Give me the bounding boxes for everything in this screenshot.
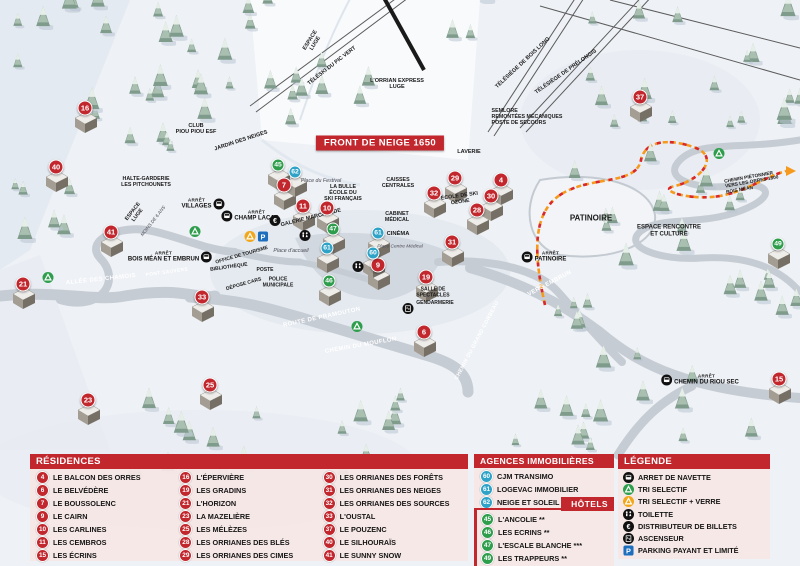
residence-item: 11LES CEMBROS bbox=[36, 536, 179, 549]
legende-item-label: ARRET DE NAVETTE bbox=[638, 473, 711, 482]
map-marker-9: 9 bbox=[371, 258, 386, 273]
recycle-yellow-icon bbox=[623, 496, 634, 507]
item-label: LES CARLINES bbox=[53, 525, 107, 534]
agency-item: 60CJM TRANSIMO bbox=[480, 470, 614, 483]
agency-item: 61LOGEVAC IMMOBILIER bbox=[480, 483, 614, 496]
item-number-badge: 47 bbox=[481, 539, 494, 552]
item-number-badge: 28 bbox=[179, 536, 192, 549]
bus-icon bbox=[522, 252, 533, 263]
euro-map-icon: € bbox=[270, 213, 281, 231]
residence-item: 16L'ÉPERVIÈRE bbox=[179, 471, 322, 484]
elevator-icon bbox=[623, 533, 634, 544]
recycle-green-icon bbox=[714, 148, 725, 159]
map-label: POLICE MUNICIPALE bbox=[263, 277, 294, 288]
map-marker-11: 11 bbox=[296, 199, 311, 214]
legende-item-label: TOILETTE bbox=[638, 510, 673, 519]
residence-item: 25LES MÉLÈZES bbox=[179, 523, 322, 536]
residence-item: 29LES ORRIANES DES CIMES bbox=[179, 549, 322, 562]
map-marker-62: 62 bbox=[289, 166, 302, 179]
euro-icon: € bbox=[270, 215, 281, 226]
item-label: LE BALCON DES ORRES bbox=[53, 473, 141, 482]
map-label: DÉPOSE CARS bbox=[226, 277, 263, 292]
map-marker-45: 45 bbox=[272, 159, 285, 172]
map-label: ESPACE LUGE bbox=[302, 29, 324, 54]
item-label: LES ORRIANES DES SOURCES bbox=[340, 499, 450, 508]
item-number-badge: 4 bbox=[36, 471, 49, 484]
bus-stop-label: ARRÊTBOIS MÉAN ET EMBRUN bbox=[128, 252, 199, 263]
map-label: LAVERIE bbox=[457, 149, 480, 155]
bus-icon bbox=[661, 375, 672, 386]
residence-item: 30LES ORRIANES DES FORÊTS bbox=[323, 471, 466, 484]
legende-item: TOILETTE bbox=[623, 508, 770, 520]
map-marker-23: 23 bbox=[81, 393, 96, 408]
map-label: TÉLÉSIÈGE DE PRÉLONGIS bbox=[534, 48, 598, 95]
item-number-badge: 30 bbox=[323, 471, 336, 484]
item-number-badge: 19 bbox=[179, 484, 192, 497]
wc-icon bbox=[623, 509, 634, 520]
residence-item: 19LES GRADINS bbox=[179, 484, 322, 497]
hotels-panel: HÔTELS 45L'ANCOLIE **46LES ECRINS **47L'… bbox=[474, 508, 614, 566]
map-label: Place Centre Médical bbox=[377, 244, 423, 249]
svg-text:€: € bbox=[273, 218, 277, 225]
residence-item: 10LES CARLINES bbox=[36, 523, 179, 536]
map-marker-25: 25 bbox=[203, 378, 218, 393]
front-de-neige-banner: FRONT DE NEIGE 1650 bbox=[316, 136, 444, 151]
legende-item: ARRET DE NAVETTE bbox=[623, 471, 770, 483]
item-label: LES ECRINS ** bbox=[498, 528, 550, 537]
bus-stop-villages: ARRÊTVILLAGES bbox=[181, 199, 224, 210]
item-label: L'OUSTAL bbox=[340, 512, 376, 521]
legende-item: ASCENSEUR bbox=[623, 532, 770, 544]
legende-panel-title: LÉGENDE bbox=[618, 454, 770, 469]
residences-list: 4LE BALCON DES ORRES6LE BELVÉDÈRE7LE BOU… bbox=[30, 469, 468, 561]
item-label: LE SILHOURAÏS bbox=[340, 538, 396, 547]
residence-item: 15LES ÉCRINS bbox=[36, 549, 179, 562]
item-label: LE BELVÉDÈRE bbox=[53, 486, 108, 495]
map-marker-49: 49 bbox=[772, 238, 785, 251]
legende-item-label: TRI SELECTIF + VERRE bbox=[638, 497, 721, 506]
item-label: LES ORRIANES DES FORÊTS bbox=[340, 473, 443, 482]
map-label: L'ORRIAN EXPRESS LUGE bbox=[370, 78, 424, 90]
map-label: HALTE-GARDERIE LES PITCHOUNETS bbox=[121, 177, 171, 189]
residence-item: 37LE POUZENC bbox=[323, 523, 466, 536]
item-number-badge: 45 bbox=[481, 513, 494, 526]
svg-text:P: P bbox=[626, 547, 631, 556]
map-marker-60: 60 bbox=[367, 247, 380, 260]
residence-item: 28LES ORRIANES DES BLÉS bbox=[179, 536, 322, 549]
item-label: LES CEMBROS bbox=[53, 538, 107, 547]
residence-item: 9LE CAIRN bbox=[36, 510, 179, 523]
residence-item: 41LE SUNNY SNOW bbox=[323, 549, 466, 562]
item-number-badge: 15 bbox=[36, 549, 49, 562]
item-label: LES MÉLÈZES bbox=[196, 525, 247, 534]
parking-icon: P bbox=[258, 231, 269, 242]
map-marker-46: 46 bbox=[323, 275, 336, 288]
legende-item-label: PARKING PAYANT ET LIMITÉ bbox=[638, 546, 739, 555]
map-label: CHEMIN DU GRAND CORBEAU bbox=[455, 301, 502, 382]
map-label: Place d'accueil bbox=[273, 249, 308, 255]
wc-icon bbox=[353, 261, 364, 272]
item-number-badge: 49 bbox=[481, 552, 494, 565]
item-number-badge: 29 bbox=[179, 549, 192, 562]
bus-stop-name: BOIS MÉAN ET EMBRUN bbox=[128, 256, 199, 262]
wc-map-icon bbox=[353, 259, 364, 277]
svg-text:€: € bbox=[627, 524, 631, 531]
map-label: ALLÉE DES CHAMOIS bbox=[66, 273, 137, 287]
item-number-badge: 41 bbox=[323, 549, 336, 562]
item-label: CJM TRANSIMO bbox=[497, 472, 553, 481]
map-marker-10: 10 bbox=[320, 201, 335, 216]
item-number-badge: 33 bbox=[323, 510, 336, 523]
map-label: CHEMIN PIÉTONNIER VERS LES ORRES 1800 BO… bbox=[724, 170, 780, 195]
bus-stop-label: ARRÊTVILLAGES bbox=[181, 199, 211, 210]
bus-icon bbox=[201, 252, 212, 263]
item-label: L'ÉPERVIÈRE bbox=[196, 473, 244, 482]
bus-stop-name: CHEMIN DU RIOU SEC bbox=[674, 379, 739, 385]
agencies-panel-title: AGENCES IMMOBILIÈRES bbox=[474, 454, 614, 468]
map-marker-31: 31 bbox=[445, 235, 460, 250]
legende-item-label: TRI SELECTIF bbox=[638, 485, 687, 494]
hotel-item: 45L'ANCOLIE ** bbox=[481, 513, 614, 526]
map-marker-15: 15 bbox=[772, 372, 787, 387]
recycle-green-map-icon bbox=[352, 319, 363, 337]
bus-stop-patinoire: ARRÊTPATINOIRE bbox=[522, 252, 567, 263]
recycle-green-icon bbox=[352, 321, 363, 332]
item-label: LE POUZENC bbox=[340, 525, 387, 534]
legende-panel: LÉGENDE ARRET DE NAVETTETRI SELECTIFTRI … bbox=[618, 454, 770, 559]
map-marker-61: 61 bbox=[372, 227, 385, 240]
recycle-green-map-icon bbox=[190, 224, 201, 242]
item-number-badge: 60 bbox=[480, 470, 493, 483]
hotels-list: 45L'ANCOLIE **46LES ECRINS **47L'ESCALE … bbox=[481, 513, 614, 565]
item-number-badge: 25 bbox=[179, 523, 192, 536]
item-number-badge: 6 bbox=[36, 484, 49, 497]
parking-map-icon: P bbox=[258, 229, 269, 247]
hotel-item: 46LES ECRINS ** bbox=[481, 526, 614, 539]
map-label: CINÉMA bbox=[387, 231, 410, 237]
item-label: LES GRADINS bbox=[196, 486, 246, 495]
map-label: CABINET MÉDICAL bbox=[385, 212, 409, 224]
recycle-yellow-map-icon bbox=[245, 229, 256, 247]
residence-item: 7LE BOUSSOLENC bbox=[36, 497, 179, 510]
map-marker-4: 4 bbox=[494, 173, 509, 188]
recycle-green-icon bbox=[43, 272, 54, 283]
bus-icon bbox=[221, 211, 232, 222]
map-marker-37: 37 bbox=[633, 90, 648, 105]
bus-stop-name: PATINOIRE bbox=[535, 256, 567, 262]
map-label: ESPACE LUGE bbox=[125, 202, 148, 226]
map-label: GENDARMERIE bbox=[416, 301, 454, 307]
map-label: ESPACE RENCONTRE ET CULTURE bbox=[637, 224, 701, 237]
legende-item: PPARKING PAYANT ET LIMITÉ bbox=[623, 545, 770, 557]
item-number-badge: 61 bbox=[480, 483, 493, 496]
map-label: JARDIN DES NEIGES bbox=[214, 129, 269, 152]
map-marker-32: 32 bbox=[427, 186, 442, 201]
item-label: LES ORRIANES DES CIMES bbox=[196, 551, 293, 560]
residence-item: 33L'OUSTAL bbox=[323, 510, 466, 523]
item-number-badge: 9 bbox=[36, 510, 49, 523]
hotel-item: 47L'ESCALE BLANCHE *** bbox=[481, 539, 614, 552]
item-label: LES ÉCRINS bbox=[53, 551, 97, 560]
item-label: L'ESCALE BLANCHE *** bbox=[498, 541, 582, 550]
bus-stop-bois-m-an-et-embrun: ARRÊTBOIS MÉAN ET EMBRUN bbox=[128, 252, 212, 263]
bus-stop-name: VILLAGES bbox=[181, 203, 211, 209]
map-marker-6: 6 bbox=[417, 325, 432, 340]
map-marker-21: 21 bbox=[16, 277, 31, 292]
resort-map: FRONT DE NEIGE 1650 ESPACE LUGEL'ORRIAN … bbox=[0, 0, 800, 566]
map-marker-30: 30 bbox=[484, 189, 499, 204]
recycle-green-map-icon bbox=[714, 146, 725, 164]
euro-icon: € bbox=[623, 521, 634, 532]
legende-item: TRI SELECTIF + VERRE bbox=[623, 496, 770, 508]
legende-item-label: ASCENSEUR bbox=[638, 534, 684, 543]
map-marker-41: 41 bbox=[104, 225, 119, 240]
map-label: CHEMIN DU MOUFLON bbox=[325, 336, 398, 355]
item-label: LA MAZELIÈRE bbox=[196, 512, 250, 521]
item-number-badge: 31 bbox=[323, 484, 336, 497]
item-number-badge: 40 bbox=[323, 536, 336, 549]
bus-stop-chemin-du-riou-sec: ARRÊTCHEMIN DU RIOU SEC bbox=[661, 375, 739, 386]
item-label: LOGEVAC IMMOBILIER bbox=[497, 485, 578, 494]
wc-icon bbox=[300, 230, 311, 241]
map-label: Place du Festival bbox=[301, 179, 341, 185]
map-label: POSTE bbox=[257, 268, 274, 274]
residence-item: 4LE BALCON DES ORRES bbox=[36, 471, 179, 484]
map-label: CAISSES CENTRALES bbox=[382, 178, 414, 190]
recycle-green-map-icon bbox=[43, 270, 54, 288]
item-number-badge: 23 bbox=[179, 510, 192, 523]
item-label: L'ANCOLIE ** bbox=[498, 515, 545, 524]
legende-item: €DISTRIBUTEUR DE BILLETS bbox=[623, 520, 770, 532]
map-marker-40: 40 bbox=[49, 160, 64, 175]
map-marker-16: 16 bbox=[78, 101, 93, 116]
map-marker-28: 28 bbox=[470, 203, 485, 218]
residence-item: 31LES ORRIANES DES NEIGES bbox=[323, 484, 466, 497]
residence-item: 23LA MAZELIÈRE bbox=[179, 510, 322, 523]
item-number-badge: 11 bbox=[36, 536, 49, 549]
recycle-green-icon bbox=[623, 484, 634, 495]
map-label: SALLE DE SPECTACLES bbox=[416, 287, 449, 298]
map-label: CLUB PIOU PIOU ESF bbox=[176, 123, 217, 135]
item-number-badge: 37 bbox=[323, 523, 336, 536]
residence-item: 21L'HORIZON bbox=[179, 497, 322, 510]
bus-icon bbox=[623, 472, 634, 483]
hotel-item: 49LES TRAPPEURS ** bbox=[481, 552, 614, 565]
item-label: NEIGE ET SOLEIL bbox=[497, 498, 559, 507]
item-number-badge: 46 bbox=[481, 526, 494, 539]
residence-item: 6LE BELVÉDÈRE bbox=[36, 484, 179, 497]
map-label: SEMLORE REMONTÉES MÉCANIQUES POSTE DE SE… bbox=[492, 109, 563, 127]
item-number-badge: 21 bbox=[179, 497, 192, 510]
map-marker-7: 7 bbox=[277, 178, 292, 193]
map-label: VERS EMBRUN bbox=[527, 270, 573, 299]
bus-icon bbox=[214, 199, 225, 210]
item-label: LES ORRIANES DES NEIGES bbox=[340, 486, 441, 495]
map-marker-29: 29 bbox=[448, 171, 463, 186]
legende-item-label: DISTRIBUTEUR DE BILLETS bbox=[638, 522, 737, 531]
item-label: LE CAIRN bbox=[53, 512, 87, 521]
item-number-badge: 32 bbox=[323, 497, 336, 510]
legende-list: ARRET DE NAVETTETRI SELECTIFTRI SELECTIF… bbox=[618, 469, 770, 559]
map-marker-33: 33 bbox=[195, 290, 210, 305]
item-number-badge: 16 bbox=[179, 471, 192, 484]
residence-item: 32LES ORRIANES DES SOURCES bbox=[323, 497, 466, 510]
residences-panel: RÉSIDENCES 4LE BALCON DES ORRES6LE BELVÉ… bbox=[30, 454, 468, 561]
hotels-panel-title: HÔTELS bbox=[561, 497, 614, 511]
item-label: L'HORIZON bbox=[196, 499, 236, 508]
residence-item: 40LE SILHOURAÏS bbox=[323, 536, 466, 549]
legende-item: TRI SELECTIF bbox=[623, 483, 770, 495]
map-marker-61: 61 bbox=[321, 242, 334, 255]
bus-stop-label: ARRÊTCHEMIN DU RIOU SEC bbox=[674, 375, 739, 386]
item-number-badge: 10 bbox=[36, 523, 49, 536]
item-label: LE SUNNY SNOW bbox=[340, 551, 402, 560]
elevator-icon bbox=[403, 303, 414, 314]
recycle-yellow-icon bbox=[245, 231, 256, 242]
residences-panel-title: RÉSIDENCES bbox=[30, 454, 468, 469]
map-marker-47: 47 bbox=[327, 223, 340, 236]
map-label: PONT SAUVERS bbox=[146, 267, 189, 278]
map-label: TÉLÉSIÈGE DE BOIS LONG bbox=[494, 36, 551, 90]
parking-icon: P bbox=[623, 545, 634, 556]
item-label: LE BOUSSOLENC bbox=[53, 499, 116, 508]
item-label: LES ORRIANES DES BLÉS bbox=[196, 538, 289, 547]
map-label: PATINOIRE bbox=[570, 215, 612, 224]
recycle-green-icon bbox=[190, 226, 201, 237]
item-label: LES TRAPPEURS ** bbox=[498, 554, 567, 563]
wc-map-icon bbox=[300, 228, 311, 246]
item-number-badge: 7 bbox=[36, 497, 49, 510]
bus-stop-label: ARRÊTPATINOIRE bbox=[535, 252, 567, 263]
map-marker-19: 19 bbox=[419, 270, 434, 285]
elevator-map-icon bbox=[403, 301, 414, 319]
svg-text:P: P bbox=[261, 232, 266, 241]
map-label: ROUTE DE PRAMOUTON bbox=[283, 306, 362, 329]
